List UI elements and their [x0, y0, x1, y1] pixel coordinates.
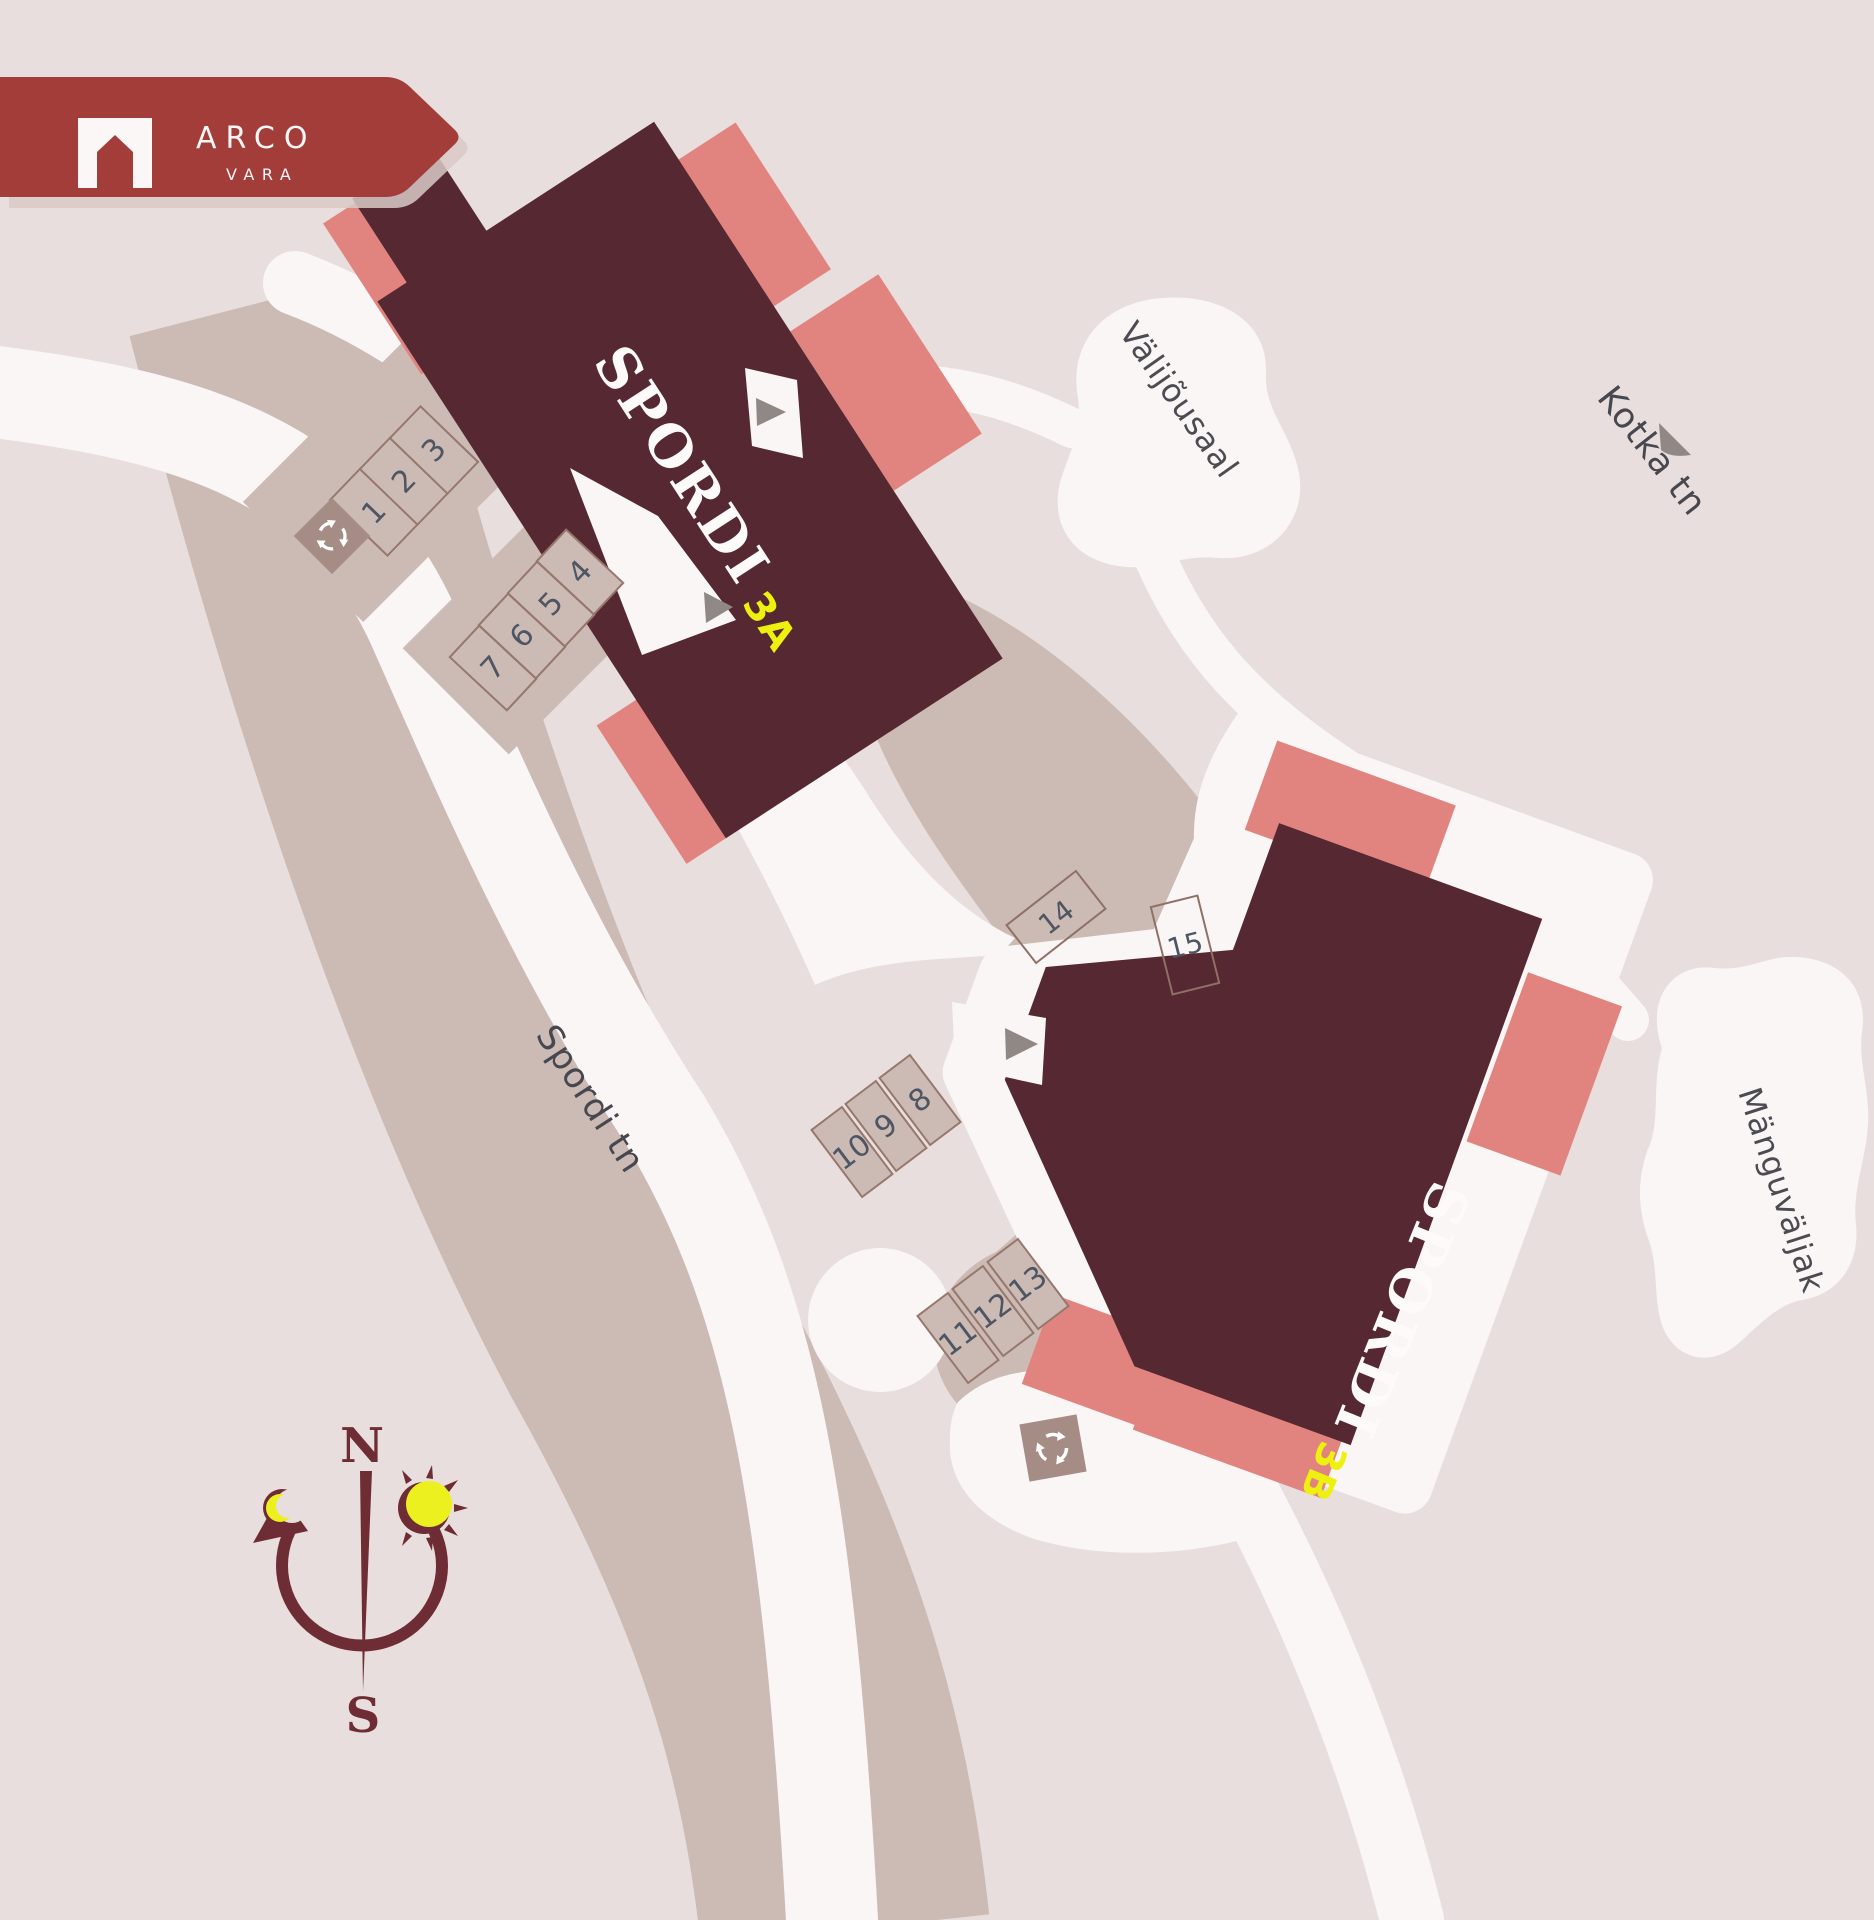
recycling-point-south [1019, 1414, 1086, 1481]
logo-brand-text: ARCO [196, 121, 316, 156]
site-plan-map: SPORDI 3A SPORDI 3B 1 2 [0, 0, 1874, 1920]
logo-sub-text: VARA [226, 165, 298, 184]
logo-banner[interactable]: ARCO VARA [0, 77, 468, 208]
site-plan: SPORDI 3A SPORDI 3B 1 2 [0, 0, 1874, 1920]
compass-south-label: S [346, 1688, 381, 1744]
arco-vara-logo-icon [78, 118, 152, 188]
compass-north-label: N [340, 1418, 384, 1474]
